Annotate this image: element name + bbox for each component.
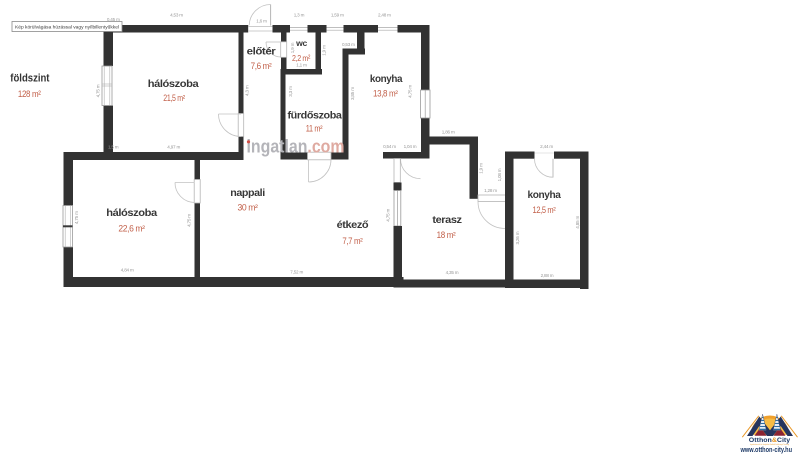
svg-text:1,86 m: 1,86 m <box>442 129 455 134</box>
svg-text:1,9 m: 1,9 m <box>321 45 326 56</box>
svg-text:1,3 m: 1,3 m <box>294 13 305 18</box>
svg-text:22,6 m²: 22,6 m² <box>118 224 145 234</box>
svg-text:fürdőszoba: fürdőszoba <box>288 111 343 122</box>
svg-text:1,9 m: 1,9 m <box>290 42 295 53</box>
svg-text:Kép körülvágása húzással vagy: Kép körülvágása húzással vagy nyílbillen… <box>15 25 119 31</box>
svg-text:4,75 m: 4,75 m <box>385 209 390 222</box>
svg-text:4,75 m: 4,75 m <box>187 214 192 227</box>
svg-text:1,08 m: 1,08 m <box>497 168 502 181</box>
svg-text:Otthon&City: Otthon&City <box>749 437 791 444</box>
svg-text:1,28 m: 1,28 m <box>484 188 497 193</box>
svg-text:1,04 m: 1,04 m <box>404 144 417 149</box>
svg-text:4,75 m: 4,75 m <box>74 211 79 224</box>
svg-text:3,85 m: 3,85 m <box>350 87 355 100</box>
svg-text:4,53 m: 4,53 m <box>170 13 183 18</box>
svg-text:18 m²: 18 m² <box>437 230 456 240</box>
svg-text:1,59 m: 1,59 m <box>331 13 344 18</box>
svg-text:30 m²: 30 m² <box>237 203 258 213</box>
svg-text:2,44 m: 2,44 m <box>540 144 553 149</box>
svg-text:4,3 m: 4,3 m <box>245 85 250 96</box>
svg-text:12,5 m²: 12,5 m² <box>533 205 556 215</box>
svg-text:13,8 m²: 13,8 m² <box>373 89 398 99</box>
svg-text:étkező: étkező <box>337 220 369 231</box>
svg-text:4,75 m: 4,75 m <box>408 85 413 98</box>
svg-text:2,2 m²: 2,2 m² <box>292 53 310 63</box>
svg-text:0,54 m: 0,54 m <box>383 144 396 149</box>
svg-text:4,97 m: 4,97 m <box>167 145 180 150</box>
svg-text:2,48 m: 2,48 m <box>378 13 391 18</box>
svg-text:www.otthon-city.hu: www.otthon-city.hu <box>740 447 792 454</box>
svg-text:1,5 m: 1,5 m <box>108 145 119 150</box>
svg-text:7,6 m²: 7,6 m² <box>251 61 272 71</box>
svg-text:4,85 m: 4,85 m <box>575 216 580 229</box>
svg-text:nappali: nappali <box>230 188 265 199</box>
svg-text:hálószoba: hálószoba <box>148 79 199 90</box>
svg-text:7,7 m²: 7,7 m² <box>342 236 363 246</box>
svg-text:4,75 m: 4,75 m <box>95 84 100 97</box>
svg-text:hálószoba: hálószoba <box>106 208 157 219</box>
svg-text:3,26 m: 3,26 m <box>515 231 520 244</box>
svg-text:terasz: terasz <box>432 215 461 226</box>
svg-text:21,5 m²: 21,5 m² <box>163 93 185 103</box>
svg-text:1,9 m: 1,9 m <box>478 163 483 174</box>
svg-text:előtér: előtér <box>247 47 276 58</box>
svg-text:3,3 m: 3,3 m <box>288 86 293 97</box>
svg-text:4,35 m: 4,35 m <box>446 270 459 275</box>
svg-text:11 m²: 11 m² <box>306 124 323 134</box>
svg-text:7,52 m: 7,52 m <box>290 269 303 274</box>
svg-text:0,53 m: 0,53 m <box>342 42 355 47</box>
svg-text:ingatlan.com: ingatlan.com <box>247 136 345 156</box>
svg-text:1,1 m: 1,1 m <box>296 63 307 68</box>
svg-text:földszint: földszint <box>10 73 49 85</box>
svg-text:konyha: konyha <box>370 74 403 85</box>
svg-text:wc: wc <box>295 38 307 48</box>
svg-text:2,88 m: 2,88 m <box>541 273 554 278</box>
svg-text:4,84 m: 4,84 m <box>121 268 134 273</box>
svg-text:konyha: konyha <box>528 190 562 201</box>
svg-text:1,6 m: 1,6 m <box>256 18 267 23</box>
svg-text:0,45 m: 0,45 m <box>107 17 120 22</box>
svg-text:Ingatlanközvetítő és Szolgálta: Ingatlanközvetítő és Szolgáltató Korláto… <box>750 443 789 446</box>
svg-text:128 m²: 128 m² <box>18 89 41 100</box>
